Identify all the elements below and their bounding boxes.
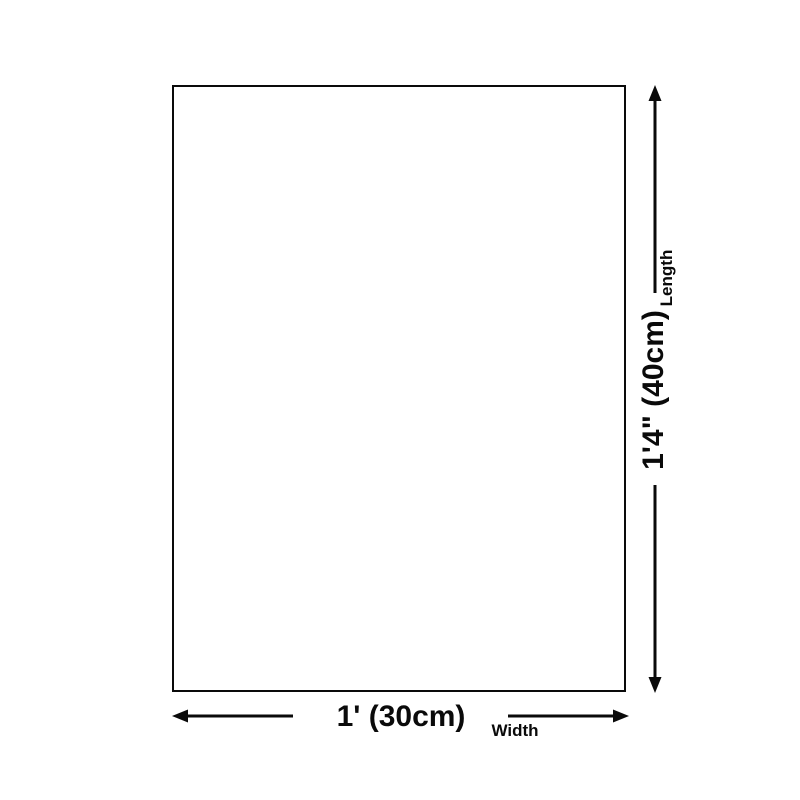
width-arrow-left-head bbox=[172, 710, 188, 723]
width-arrow-right-head bbox=[613, 710, 629, 723]
width-dimension-label: Width bbox=[491, 721, 538, 741]
length-arrow-up-head bbox=[649, 85, 662, 101]
length-arrow-down-head bbox=[649, 677, 662, 693]
length-dimension-value: 1'4" (40cm) bbox=[637, 310, 671, 470]
width-dimension-value: 1' (30cm) bbox=[337, 700, 466, 734]
product-dimension-diagram: 1'4" (40cm) Length 1' (30cm) Width bbox=[0, 0, 800, 800]
length-dimension-label: Length bbox=[657, 250, 677, 307]
product-size-box bbox=[172, 85, 626, 692]
